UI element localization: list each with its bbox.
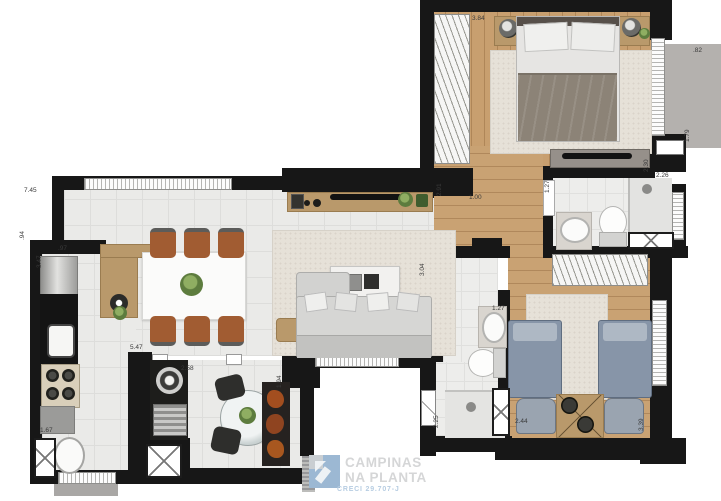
wall-void-left (300, 368, 314, 456)
dining-chair (218, 228, 244, 258)
kitchen-fridge (40, 256, 78, 296)
exterior-ledge (54, 484, 118, 496)
bathroom1-shaft (628, 232, 674, 249)
dining-chair (150, 316, 176, 346)
sofa-pillow (366, 292, 389, 312)
bathroom2-toilet-tank (493, 348, 506, 378)
sideboard-speaker-icon (313, 199, 321, 207)
bathroom2-drain-icon (466, 402, 476, 412)
bedroom2-stool-top-icon (561, 397, 578, 414)
laundry-tub (54, 437, 85, 474)
dining-plant-icon (180, 273, 203, 296)
bedroom2-chair-right (604, 398, 644, 434)
sofa-pillow (396, 292, 420, 313)
sideboard-greenery (416, 194, 428, 207)
window-living-top (84, 178, 232, 190)
bedroom2-chair-left (516, 398, 556, 434)
kitchen-sink (47, 324, 75, 358)
kitchen-shaft (34, 438, 56, 478)
sofa-back (297, 335, 431, 358)
wall-bedroom1-top (420, 0, 666, 12)
floor-plan: 3.842.91.821.792.302.261.271.003.047.45.… (0, 0, 721, 501)
washing-machine-icon (156, 367, 183, 394)
bedroom2-bed-right (598, 320, 652, 398)
wall-top-center (282, 168, 434, 192)
watermark-logo-icon (309, 455, 340, 488)
sofa-body (296, 296, 432, 358)
bathroom1-toilet-tank (599, 232, 627, 247)
wall-hall-living (433, 168, 473, 196)
office-cabinet (262, 382, 290, 466)
laundry-rack (153, 404, 187, 436)
watermark: CAMPINAS NA PLANTA CRECI 29.707-J (305, 452, 485, 498)
wall-bedroom2-bottom (495, 438, 645, 460)
door-bathroom1 (543, 180, 555, 216)
office-plant-icon (239, 407, 256, 424)
living-tv (330, 194, 402, 200)
bedroom1-tv (562, 153, 632, 159)
bedroom2-stool-bottom-icon (577, 416, 594, 433)
bedroom2-bed-left (508, 320, 562, 398)
watermark-line1: CAMPINAS (345, 456, 422, 470)
bathroom1-drain-icon (642, 184, 652, 194)
dimension-label-wall-segment-left: .94 (20, 231, 27, 240)
door-office-right (226, 354, 242, 365)
dining-chair (150, 228, 176, 258)
sideboard-speaker-icon (304, 200, 310, 206)
window-bedroom2 (652, 300, 667, 386)
bed-pillow (513, 323, 557, 341)
sofa-pillow (304, 292, 328, 313)
kitchen-counter-gray (40, 406, 75, 434)
wall-living-left (52, 176, 64, 250)
terrace-floor (664, 44, 721, 148)
bathroom2-basin (482, 312, 506, 343)
dining-chair (184, 228, 210, 258)
bathroom2-shaft (492, 388, 510, 436)
kitchen-cooktop (41, 364, 80, 408)
terrace-vent (656, 140, 684, 155)
bench-plant-icon (113, 306, 127, 320)
bedroom2-wardrobe (552, 254, 648, 286)
coffee-table-decor (364, 274, 379, 289)
bedroom1-bed (516, 16, 620, 142)
wall-bedroom2-corner (640, 438, 686, 464)
bedroom1-wardrobe (434, 14, 470, 164)
window-bedroom1-right (651, 38, 665, 136)
dimension-label-living-width: 7.45 (24, 188, 37, 195)
watermark-creci: CRECI 29.707-J (337, 486, 400, 493)
dining-chair (218, 316, 244, 346)
sideboard-plant-icon (398, 192, 413, 207)
bed-pillow (603, 323, 647, 341)
bedroom1-plant-icon (639, 28, 650, 39)
bathroom1-basin (560, 217, 590, 243)
laundry-shaft (146, 444, 182, 478)
dining-chair (184, 316, 210, 346)
bed-pillow-left (523, 22, 568, 52)
sideboard-frame (291, 194, 304, 209)
door-entry (421, 390, 436, 426)
bed-blanket (518, 73, 617, 141)
bed-pillow-right (570, 22, 615, 52)
watermark-line2: NA PLANTA (345, 471, 427, 485)
wall-bedroom1-right-top (650, 0, 672, 40)
sofa-pillow (334, 292, 358, 312)
